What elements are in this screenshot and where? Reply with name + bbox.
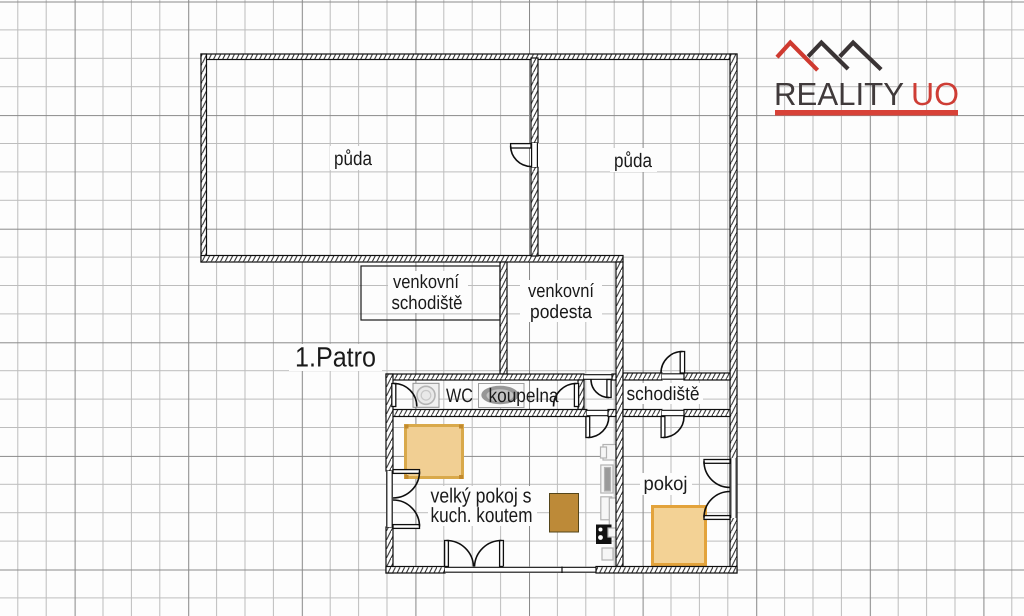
svg-text:půda: půda [334, 148, 372, 170]
svg-text:půda: půda [614, 150, 652, 172]
svg-text:schodiště: schodiště [627, 384, 700, 405]
svg-text:WC: WC [446, 385, 473, 407]
svg-text:kuch. koutem: kuch. koutem [431, 504, 533, 527]
svg-text:koupelna: koupelna [489, 385, 559, 407]
svg-text:1.Patro: 1.Patro [295, 342, 376, 373]
svg-text:REALITY: REALITY [774, 76, 904, 112]
svg-text:UO: UO [911, 76, 959, 112]
svg-text:venkovní: venkovní [393, 272, 460, 293]
svg-text:pokoj: pokoj [644, 473, 688, 495]
svg-text:venkovní: venkovní [528, 281, 595, 302]
svg-text:schodiště: schodiště [392, 293, 463, 314]
svg-text:podesta: podesta [530, 302, 592, 323]
